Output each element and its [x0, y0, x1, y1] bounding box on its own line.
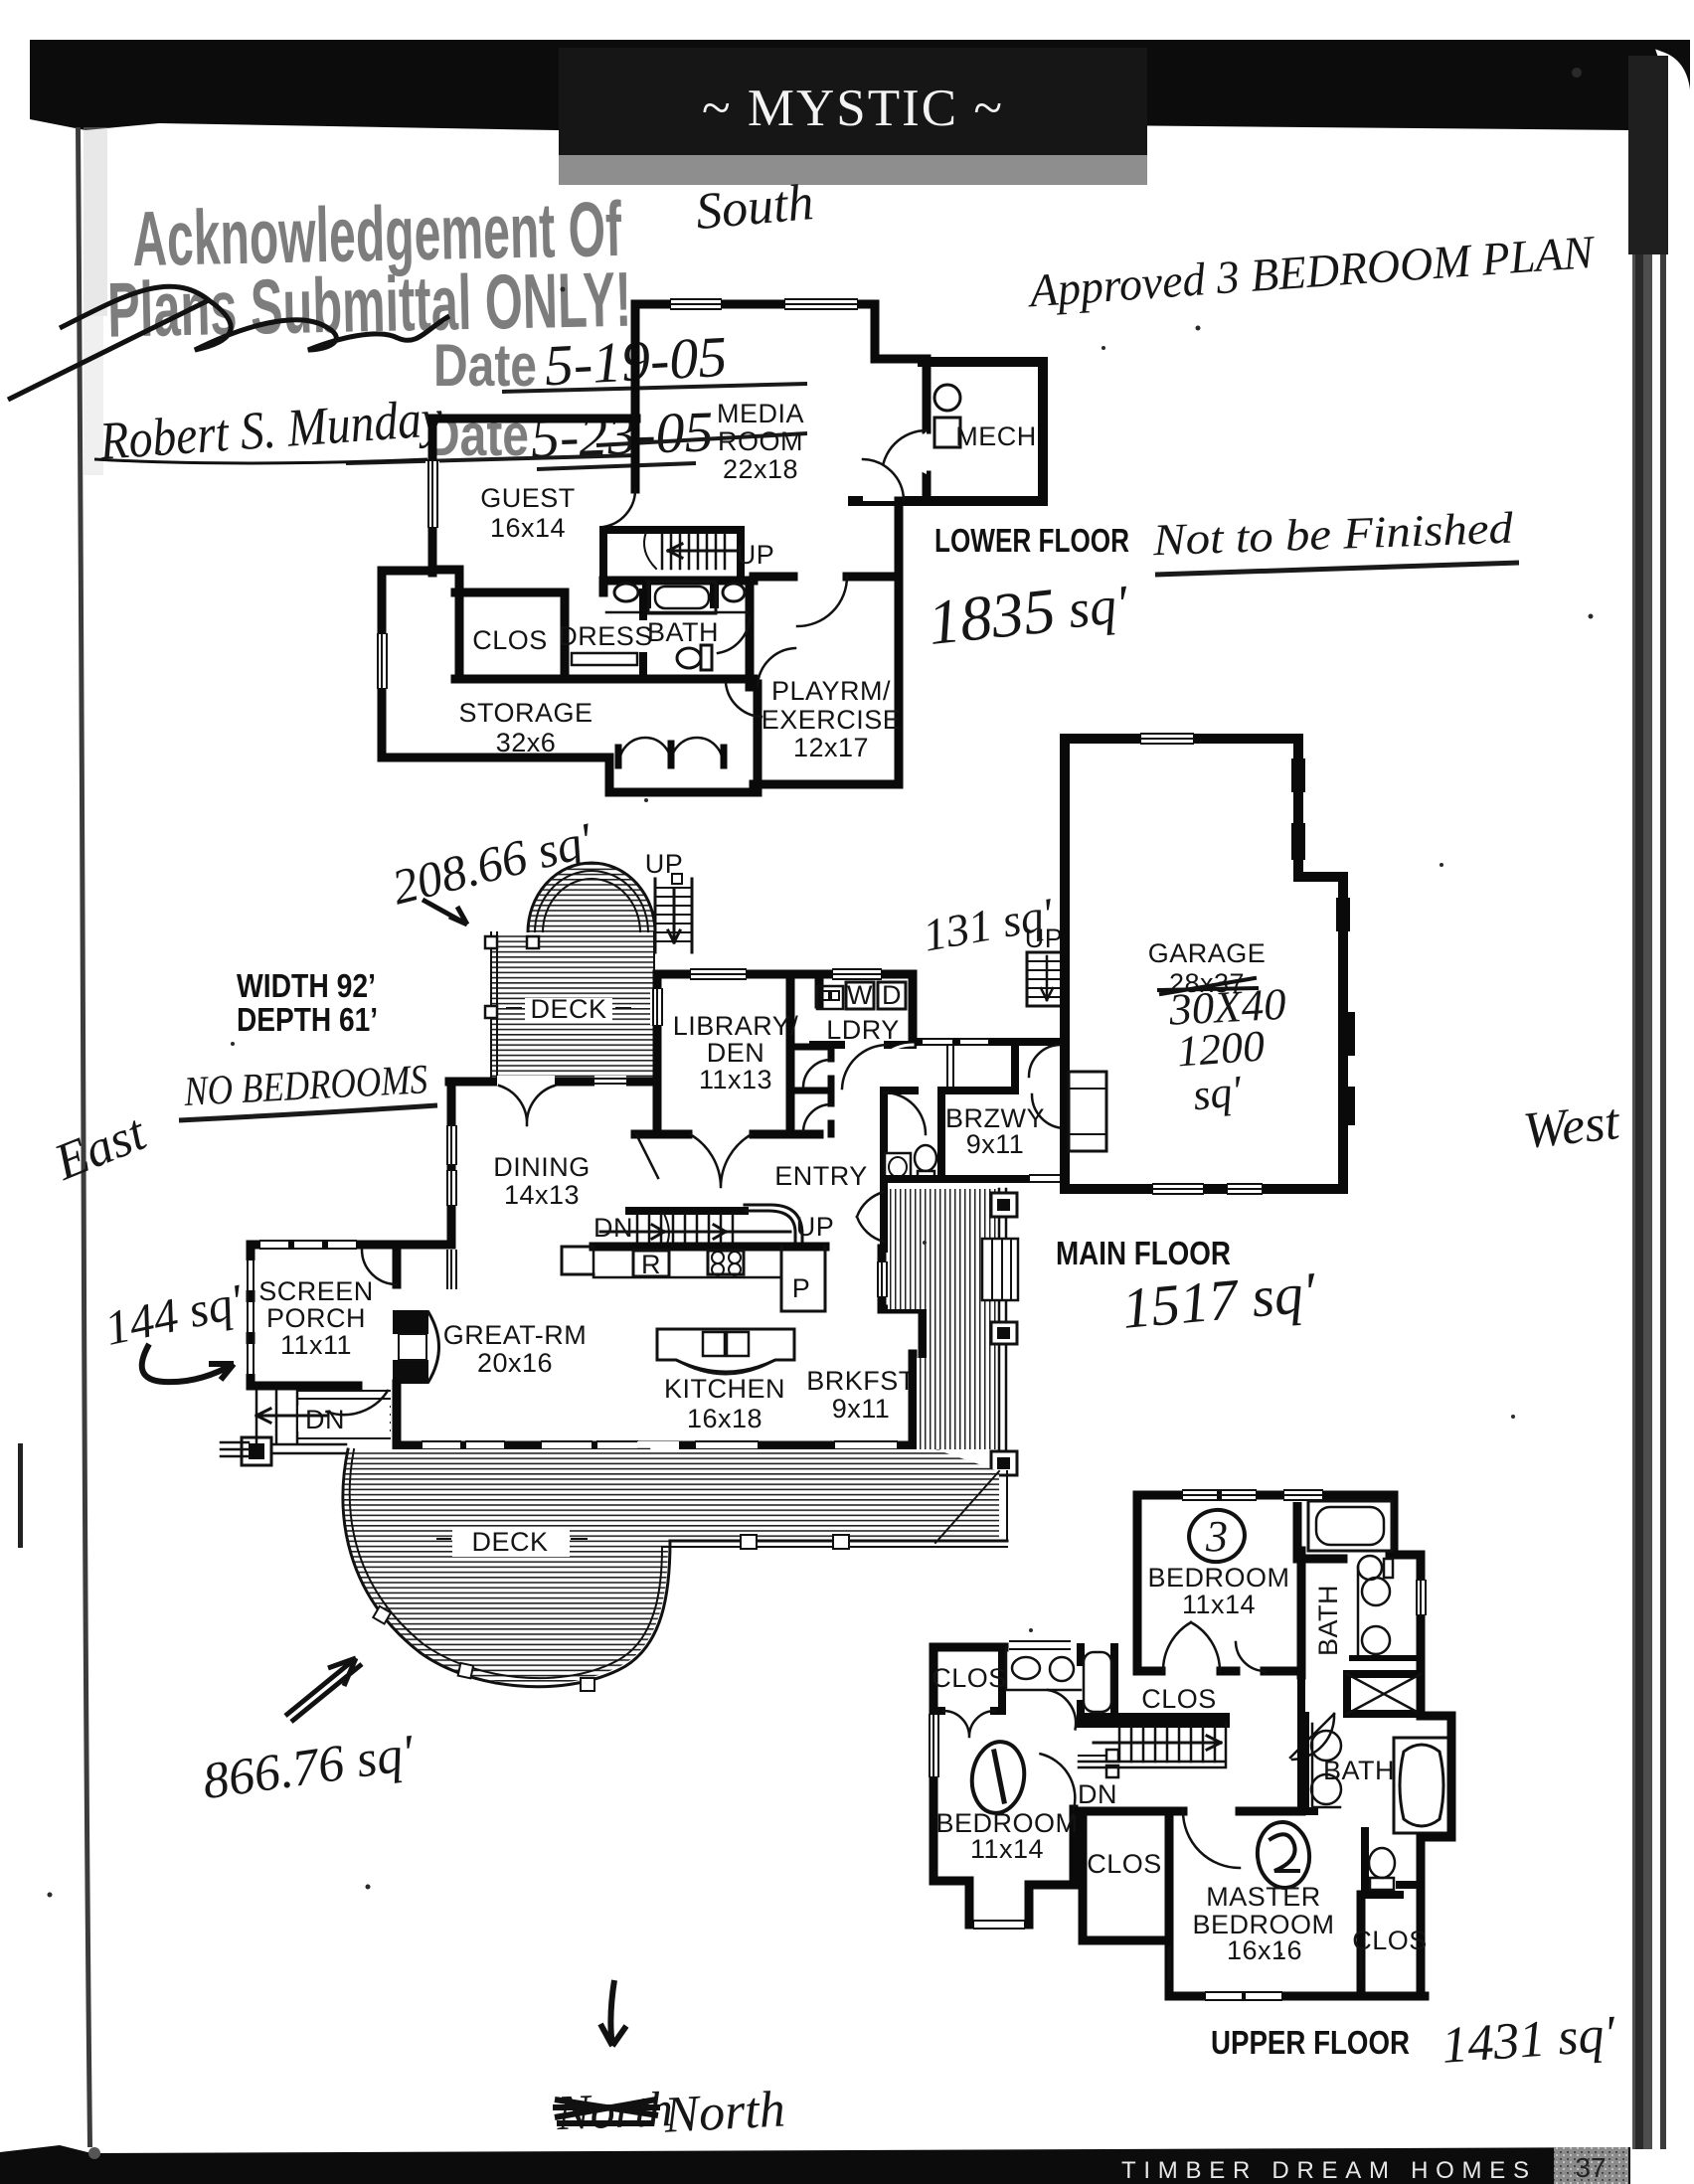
svg-text:22x18: 22x18: [723, 454, 798, 484]
svg-text:GARAGE: GARAGE: [1148, 938, 1267, 968]
svg-text:37: 37: [1575, 2152, 1606, 2183]
svg-text:North: North: [662, 2081, 786, 2143]
svg-text:BATH: BATH: [1313, 1585, 1343, 1656]
svg-text:SCREEN: SCREEN: [258, 1276, 374, 1306]
svg-text:LIBRARY/: LIBRARY/: [673, 1011, 799, 1041]
svg-text:GREAT-RM: GREAT-RM: [443, 1320, 588, 1350]
svg-text:DEN: DEN: [707, 1038, 765, 1068]
svg-text:GUEST: GUEST: [480, 483, 576, 513]
svg-text:DN: DN: [305, 1405, 345, 1434]
svg-text:11x13: 11x13: [699, 1065, 772, 1094]
svg-text:ROOM: ROOM: [718, 426, 803, 456]
svg-text:20x16: 20x16: [477, 1348, 553, 1378]
svg-text:DECK: DECK: [530, 994, 606, 1024]
svg-text:WIDTH 92’: WIDTH 92’: [237, 967, 376, 1004]
svg-text:sq′: sq′: [1191, 1067, 1246, 1120]
svg-text:CLOS: CLOS: [1141, 1684, 1217, 1714]
svg-text:MASTER: MASTER: [1206, 1882, 1321, 1912]
svg-text:~ MYSTIC ~: ~ MYSTIC ~: [702, 80, 1004, 137]
svg-text:Date: Date: [433, 332, 537, 399]
svg-text:BATH: BATH: [647, 617, 719, 647]
svg-text:3: 3: [1205, 1512, 1228, 1561]
svg-text:CLOS: CLOS: [472, 625, 548, 655]
svg-text:West: West: [1521, 1093, 1623, 1160]
svg-text:South: South: [694, 174, 816, 241]
svg-text:DEPTH 61’: DEPTH 61’: [237, 1001, 378, 1038]
svg-text:16x18: 16x18: [687, 1404, 762, 1433]
svg-text:32x6: 32x6: [496, 728, 557, 757]
svg-text:PORCH: PORCH: [266, 1303, 366, 1333]
svg-text:W: W: [847, 980, 873, 1010]
svg-text:R: R: [641, 1250, 661, 1279]
svg-text:11x14: 11x14: [1182, 1590, 1256, 1619]
svg-text:MEDIA: MEDIA: [717, 399, 804, 428]
svg-text:BEDROOM: BEDROOM: [1147, 1563, 1289, 1593]
svg-text:UP: UP: [1025, 924, 1064, 953]
svg-text:16x16: 16x16: [1227, 1935, 1302, 1965]
svg-text:DECK: DECK: [471, 1527, 548, 1557]
svg-text:PLAYRM/: PLAYRM/: [771, 676, 891, 706]
svg-text:11x14: 11x14: [970, 1834, 1044, 1864]
svg-text:STORAGE: STORAGE: [458, 698, 593, 728]
svg-text:MAIN FLOOR: MAIN FLOOR: [1056, 1235, 1231, 1271]
svg-text:DN: DN: [593, 1213, 633, 1243]
svg-text:9x11: 9x11: [966, 1129, 1025, 1159]
svg-text:EXERCISE: EXERCISE: [762, 705, 902, 735]
svg-text:KITCHEN: KITCHEN: [664, 1374, 785, 1404]
svg-text:UPPER FLOOR: UPPER FLOOR: [1211, 2024, 1410, 2061]
svg-text:CLOS: CLOS: [932, 1663, 1007, 1693]
svg-text:DN: DN: [1078, 1779, 1117, 1809]
svg-text:ENTRY: ENTRY: [774, 1161, 868, 1191]
svg-text:BRKFST: BRKFST: [806, 1366, 916, 1396]
svg-text:11x11: 11x11: [280, 1330, 352, 1360]
svg-text:14x13: 14x13: [504, 1180, 580, 1210]
svg-text:16x14: 16x14: [490, 513, 566, 543]
svg-text:UP: UP: [645, 849, 684, 879]
svg-text:9x11: 9x11: [832, 1394, 891, 1424]
svg-text:DINING: DINING: [493, 1152, 591, 1182]
svg-text:CLOS: CLOS: [1087, 1849, 1162, 1879]
svg-text:CLOS: CLOS: [1352, 1926, 1428, 1955]
svg-text:DRESS: DRESS: [558, 621, 653, 651]
svg-text:LDRY: LDRY: [826, 1015, 900, 1045]
svg-text:P: P: [792, 1273, 811, 1303]
svg-text:LOWER FLOOR: LOWER FLOOR: [934, 522, 1129, 559]
svg-text:UP: UP: [796, 1212, 835, 1242]
svg-text:UP: UP: [737, 540, 775, 570]
svg-text:12x17: 12x17: [793, 733, 869, 762]
svg-text:D: D: [882, 980, 902, 1010]
svg-text:BATH: BATH: [1323, 1756, 1395, 1785]
svg-text:MECH: MECH: [955, 421, 1037, 451]
svg-text:TIMBER DREAM HOMES: TIMBER DREAM HOMES: [1121, 2157, 1537, 2184]
